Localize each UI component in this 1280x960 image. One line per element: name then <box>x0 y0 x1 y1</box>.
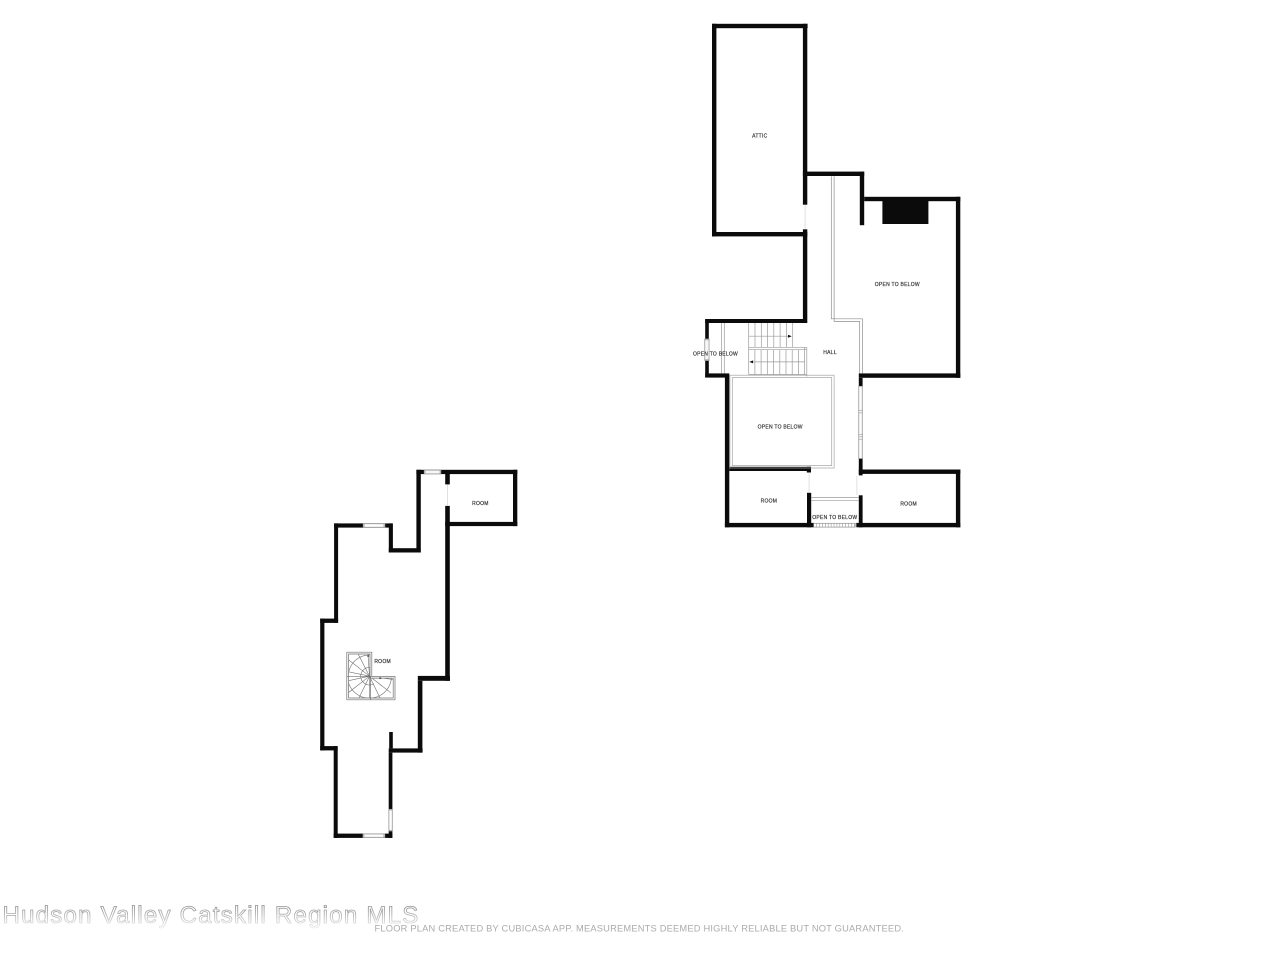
svg-text:ROOM: ROOM <box>472 501 489 507</box>
svg-text:Hudson Valley Catskill Region: Hudson Valley Catskill Region MLS <box>3 902 420 929</box>
svg-text:FLOOR PLAN CREATED BY CUBICASA: FLOOR PLAN CREATED BY CUBICASA APP. MEAS… <box>375 924 905 934</box>
svg-text:ROOM: ROOM <box>900 501 917 507</box>
svg-text:OPEN TO BELOW: OPEN TO BELOW <box>812 515 857 521</box>
svg-text:HALL: HALL <box>823 350 837 356</box>
svg-text:OPEN TO BELOW: OPEN TO BELOW <box>758 425 803 431</box>
svg-text:OPEN TO BELOW: OPEN TO BELOW <box>875 282 920 288</box>
svg-text:ROOM: ROOM <box>761 499 778 505</box>
svg-text:OPEN TO BELOW: OPEN TO BELOW <box>693 351 738 357</box>
svg-text:ROOM: ROOM <box>374 659 391 665</box>
svg-text:ATTIC: ATTIC <box>752 134 767 140</box>
